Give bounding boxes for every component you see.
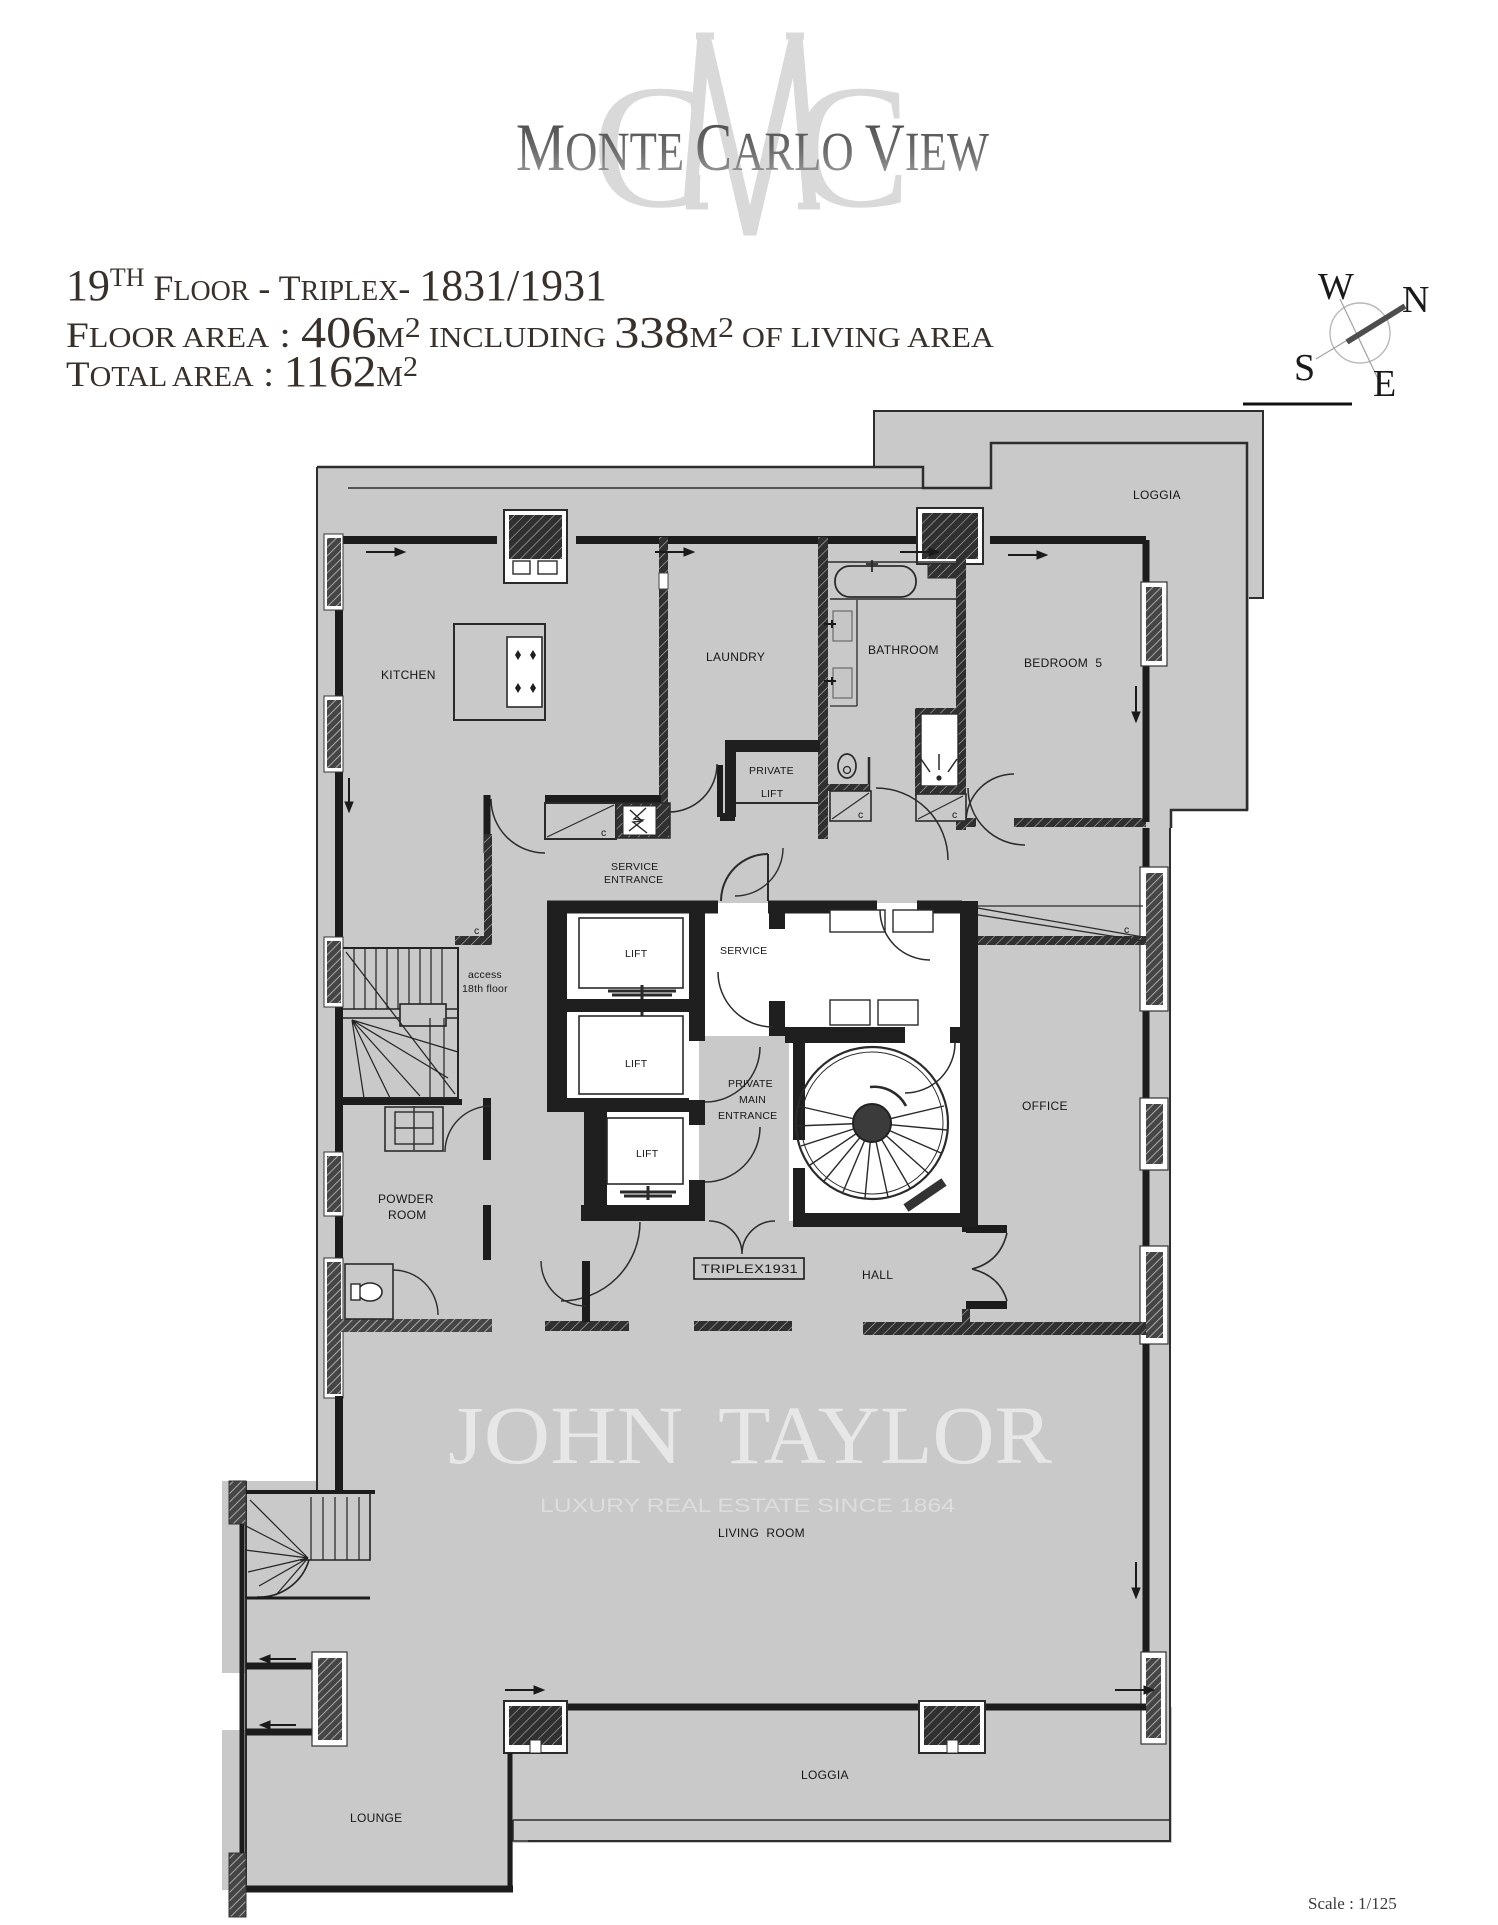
svg-text:LOGGIA: LOGGIA [801,1768,849,1782]
svg-text:E: E [1373,363,1396,405]
svg-text:c: c [474,925,479,937]
svg-text:JOHN: JOHN [448,1389,683,1481]
svg-text:S: S [1294,347,1315,389]
svg-text:POWDER: POWDER [378,1192,434,1206]
svg-text:BATHROOM: BATHROOM [868,643,939,657]
svg-text:c: c [952,809,957,821]
svg-text:ENTRANCE: ENTRANCE [718,1110,777,1122]
svg-text:TAYLOR: TAYLOR [718,1389,1053,1481]
svg-text:PRIVATE: PRIVATE [749,765,794,777]
svg-text:LOGGIA: LOGGIA [1133,488,1181,502]
svg-text:Scale : 1/125: Scale : 1/125 [1308,1894,1397,1913]
svg-text:LIFT: LIFT [625,948,648,960]
svg-text:OFFICE: OFFICE [1022,1099,1068,1113]
svg-text:LAUNDRY: LAUNDRY [706,650,765,664]
svg-text:SERVICE: SERVICE [720,945,767,957]
svg-text:HALL: HALL [862,1268,893,1282]
svg-text:ENTRANCE: ENTRANCE [604,874,663,886]
svg-text:c: c [858,809,863,821]
svg-text:MONTE CARLO VIEW: MONTE CARLO VIEW [516,109,989,185]
svg-text:ROOM: ROOM [388,1208,427,1222]
svg-text:PRIVATE: PRIVATE [728,1078,773,1090]
svg-text:SERVICE: SERVICE [611,861,658,873]
svg-text:c: c [601,827,606,839]
svg-text:LIFT: LIFT [625,1058,648,1070]
svg-text:TRIPLEX1931: TRIPLEX1931 [701,1262,798,1276]
svg-text:access: access [468,969,502,981]
svg-text:LIFT: LIFT [636,1148,659,1160]
svg-text:N: N [1402,279,1429,321]
svg-text:LIVING ROOM: LIVING ROOM [718,1526,805,1540]
svg-text:KITCHEN: KITCHEN [381,668,436,682]
svg-text:18th floor: 18th floor [462,983,508,995]
svg-text:BEDROOM 5: BEDROOM 5 [1024,656,1102,670]
svg-text:c: c [1124,924,1129,936]
svg-text:LOUNGE: LOUNGE [350,1811,402,1825]
svg-text:LIFT: LIFT [761,788,784,800]
svg-text:MAIN: MAIN [739,1094,766,1106]
svg-text:LUXURY REAL ESTATE SINCE 1864: LUXURY REAL ESTATE SINCE 1864 [540,1496,956,1517]
svg-text:W: W [1318,266,1354,308]
